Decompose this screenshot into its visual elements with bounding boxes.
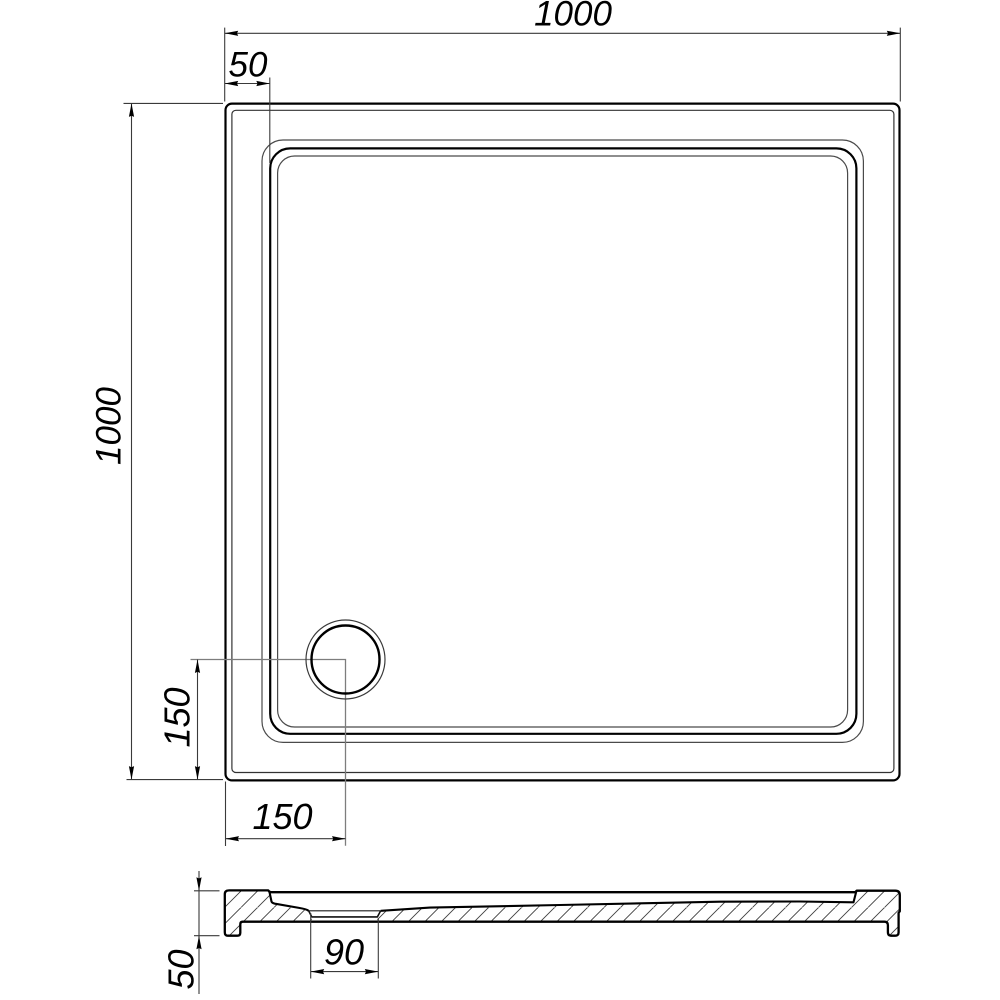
svg-text:150: 150 [252, 796, 312, 837]
svg-text:90: 90 [324, 932, 364, 973]
svg-text:1000: 1000 [90, 387, 129, 465]
svg-text:150: 150 [157, 687, 198, 747]
svg-text:50: 50 [229, 46, 268, 85]
svg-text:1000: 1000 [534, 0, 612, 34]
svg-text:50: 50 [161, 949, 202, 989]
